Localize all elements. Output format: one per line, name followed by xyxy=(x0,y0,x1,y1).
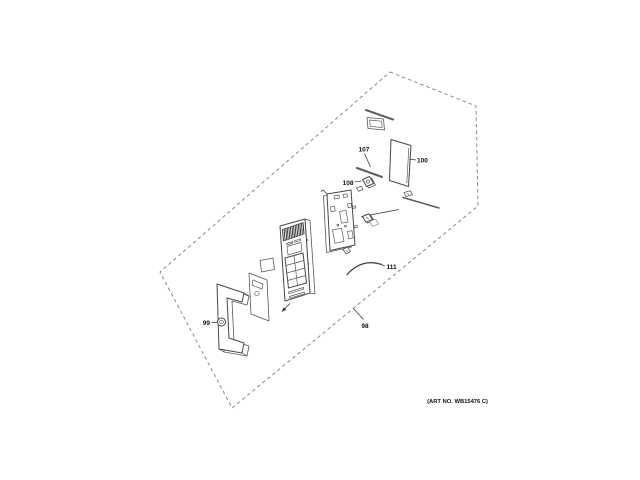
callout-107-label: 107 xyxy=(359,147,370,154)
button-part-99 xyxy=(218,318,226,326)
callout-111-leader xyxy=(382,265,386,266)
smart-board-part xyxy=(321,190,357,253)
assembly-direction-arrow xyxy=(282,304,291,313)
bracket-part-108 xyxy=(363,177,376,189)
callout-98-leader xyxy=(354,309,364,320)
clip-part xyxy=(357,186,364,191)
parts-diagram-page: 99 98 100 107 108 111 (ART NO. WB15476 C… xyxy=(0,0,640,480)
wire-part-111 xyxy=(347,263,382,275)
membrane-panel-part xyxy=(249,273,269,321)
screw-dot xyxy=(307,239,309,241)
callout-98-label: 98 xyxy=(361,323,369,330)
screw-dot xyxy=(308,263,310,265)
callout-100-label: 100 xyxy=(417,158,428,165)
callout-99-label: 99 xyxy=(203,320,211,327)
access-panel-part-100 xyxy=(390,140,412,187)
board-tab xyxy=(321,190,327,194)
callout-111-label: 111 xyxy=(387,264,398,271)
control-panel-part xyxy=(280,219,315,301)
vent-frame-part xyxy=(367,118,385,131)
label-plate-part xyxy=(260,258,275,272)
rod-part xyxy=(403,198,439,209)
assembly-boundary-outline xyxy=(160,72,478,408)
exploded-parts-diagram: 99 98 100 107 108 111 (ART NO. WB15476 C… xyxy=(0,0,640,480)
clip-part xyxy=(404,191,413,197)
callout-108-label: 108 xyxy=(343,180,354,187)
art-number-label: (ART NO. WB15476 C) xyxy=(427,399,488,405)
callout-107-leader xyxy=(365,154,371,168)
callout-108-leader xyxy=(355,181,362,182)
rod-part-107 xyxy=(357,168,382,177)
